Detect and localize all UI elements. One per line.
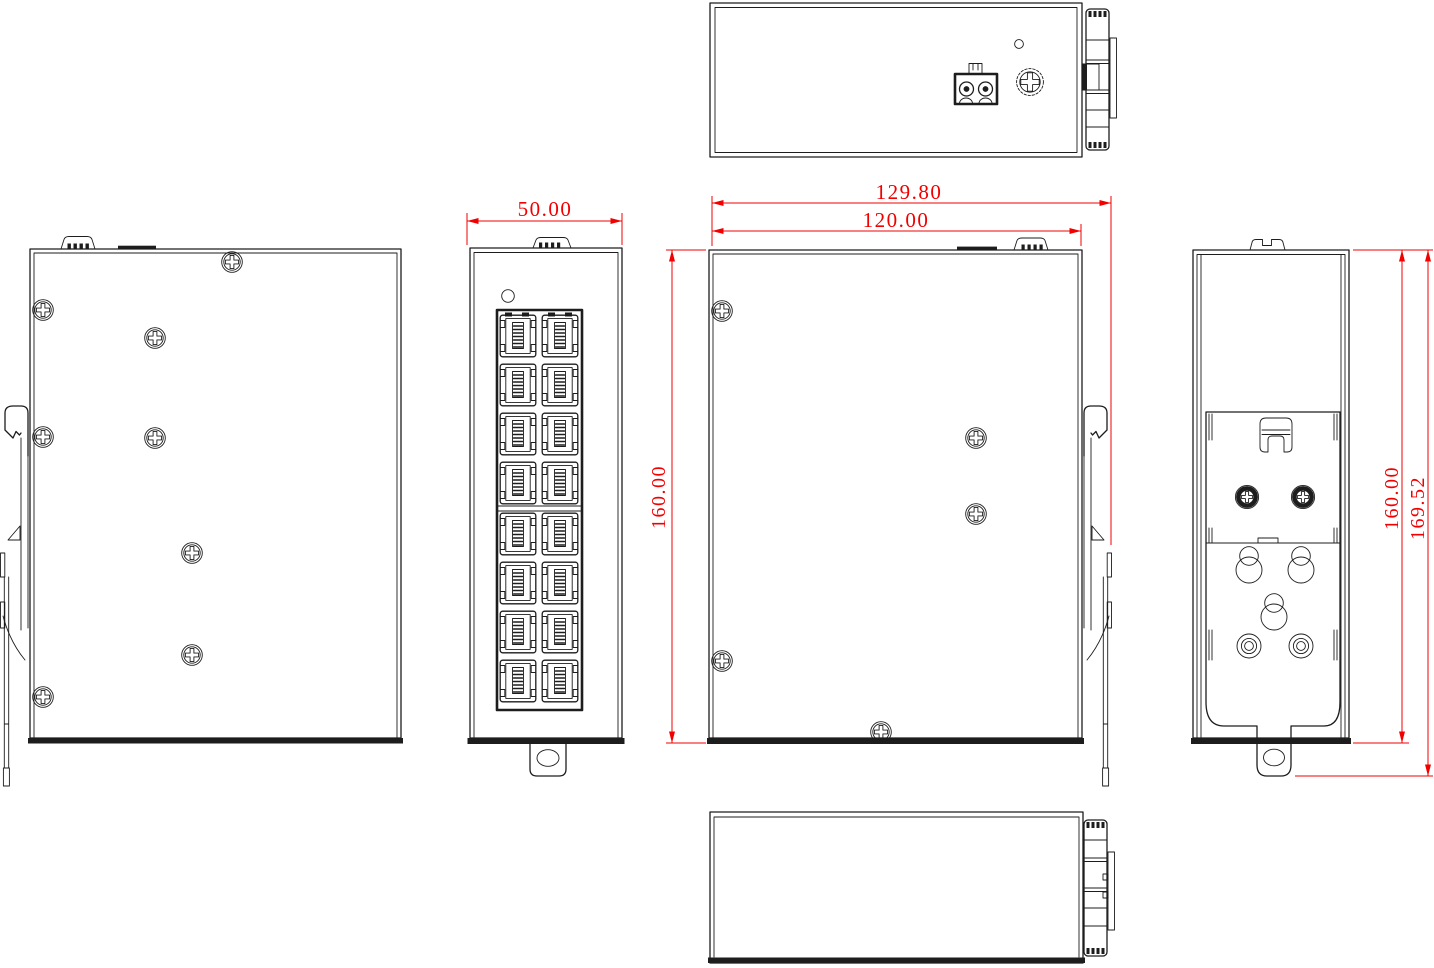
rj45-port — [500, 660, 536, 702]
rivet — [1289, 634, 1313, 658]
rj45-port-block — [497, 310, 582, 710]
phillips-screw — [712, 651, 733, 672]
phillips-screw-dark — [1235, 485, 1258, 508]
dim-label-body-depth: 120.00 — [863, 208, 930, 232]
clip-button-notched — [1250, 240, 1285, 251]
dim-overall-height: 169.52 — [1295, 250, 1433, 776]
phillips-screw — [966, 428, 987, 449]
din-rail-clip-bottom — [1084, 820, 1115, 956]
din-hook — [1260, 418, 1292, 452]
phillips-screw — [966, 504, 987, 525]
phillips-screw — [33, 687, 54, 708]
rj45-port — [500, 611, 536, 653]
left-side-view — [1, 237, 404, 787]
power-terminal-2pin — [955, 64, 997, 105]
rj45-port — [500, 364, 536, 406]
rj45-port — [542, 413, 578, 455]
rj45-port — [542, 660, 578, 702]
clip-button-edge — [61, 237, 95, 250]
rj45-port — [500, 462, 536, 504]
phillips-screw — [33, 300, 54, 321]
rj45-port — [542, 513, 578, 555]
phillips-screw — [222, 252, 243, 273]
rj45-port — [542, 611, 578, 653]
led-indicator-hole — [502, 290, 515, 303]
phillips-screw — [182, 543, 203, 564]
ground-screw — [1017, 69, 1044, 96]
phillips-screw — [145, 428, 166, 449]
main-side-view — [707, 238, 1112, 786]
dim-label-overall-height: 169.52 — [1407, 476, 1429, 540]
back-view — [1191, 240, 1351, 777]
rj45-port — [542, 315, 578, 357]
dim-overall-depth: 129.80 — [712, 180, 1111, 545]
mounting-tab — [530, 744, 566, 776]
dimensions: 50.00 129.80 120.00 160.00 160.00 169.52 — [467, 180, 1433, 776]
dim-label-left-height: 160.00 — [648, 465, 670, 529]
dim-label-front-width: 50.00 — [518, 197, 573, 221]
rj45-port — [500, 562, 536, 604]
drawing-canvas: 50.00 129.80 120.00 160.00 160.00 169.52 — [0, 0, 1434, 968]
dim-left-height: 160.00 — [648, 250, 706, 743]
mounting-tab-slot — [1264, 749, 1285, 766]
din-rail-clip-profile-left — [1, 406, 29, 786]
phillips-screw — [182, 645, 203, 666]
rj45-port — [500, 315, 536, 357]
clip-button-edge — [1014, 238, 1048, 250]
keyhole-slot — [1288, 547, 1314, 583]
dim-label-overall-depth: 129.80 — [876, 180, 943, 204]
rj45-port — [500, 513, 536, 555]
rj45-port — [542, 364, 578, 406]
keyhole-slot — [1261, 594, 1287, 630]
dim-label-right-height: 160.00 — [1381, 466, 1403, 530]
rj45-port — [542, 462, 578, 504]
engineering-drawing: 50.00 129.80 120.00 160.00 160.00 169.52 — [0, 0, 1434, 968]
rivet — [1237, 634, 1261, 658]
din-rail-clip-profile-right — [1084, 406, 1112, 786]
phillips-screw — [712, 301, 733, 322]
pilot-hole — [1015, 40, 1024, 49]
dim-body-depth: 120.00 — [712, 208, 1081, 246]
rj45-port — [500, 413, 536, 455]
rj45-port — [542, 562, 578, 604]
mounting-tab-slot — [537, 750, 559, 767]
wall-mount-bracket — [1206, 412, 1340, 776]
phillips-screw — [33, 427, 54, 448]
front-view — [468, 238, 625, 777]
bottom-view — [708, 812, 1115, 963]
keyhole-slot — [1236, 547, 1262, 583]
phillips-screw-dark — [1291, 485, 1314, 508]
top-vent-slot — [957, 247, 997, 250]
din-rail-clip-top — [1082, 9, 1117, 150]
phillips-screw — [145, 328, 166, 349]
top-view — [710, 3, 1117, 157]
